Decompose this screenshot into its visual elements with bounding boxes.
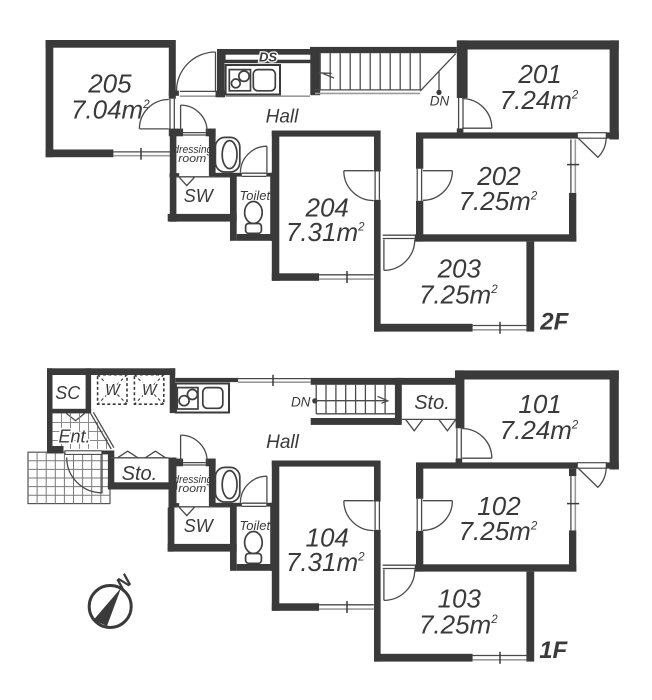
svg-text:7.25m2: 7.25m2 (459, 186, 538, 216)
svg-text:W: W (142, 382, 158, 399)
svg-text:room: room (178, 483, 206, 495)
svg-text:Toilet: Toilet (239, 518, 271, 533)
svg-text:SW: SW (184, 186, 215, 206)
svg-text:7.31m2: 7.31m2 (286, 547, 365, 577)
svg-text:W: W (105, 382, 121, 399)
svg-text:7.25m2: 7.25m2 (459, 516, 538, 546)
svg-text:7.25m2: 7.25m2 (419, 279, 498, 309)
svg-text:room: room (178, 153, 206, 165)
svg-text:Ent.: Ent. (58, 427, 90, 447)
svg-text:Sto.: Sto. (414, 392, 450, 414)
svg-text:Hall: Hall (266, 106, 300, 127)
svg-text:Hall: Hall (266, 432, 300, 453)
svg-text:7.25m2: 7.25m2 (419, 609, 498, 639)
svg-text:Sto.: Sto. (122, 463, 158, 485)
svg-text:DS: DS (259, 50, 277, 65)
svg-text:SC: SC (55, 383, 81, 403)
svg-text:1F: 1F (539, 637, 568, 664)
svg-text:7.24m2: 7.24m2 (500, 415, 579, 445)
svg-text:7.24m2: 7.24m2 (500, 85, 579, 115)
svg-text:Toilet: Toilet (239, 188, 271, 203)
svg-text:SW: SW (184, 516, 215, 536)
svg-text:DN: DN (430, 94, 450, 109)
svg-text:2F: 2F (539, 309, 569, 336)
svg-text:DN: DN (291, 395, 311, 410)
svg-text:7.04m2: 7.04m2 (71, 95, 150, 125)
svg-text:7.31m2: 7.31m2 (286, 217, 365, 247)
